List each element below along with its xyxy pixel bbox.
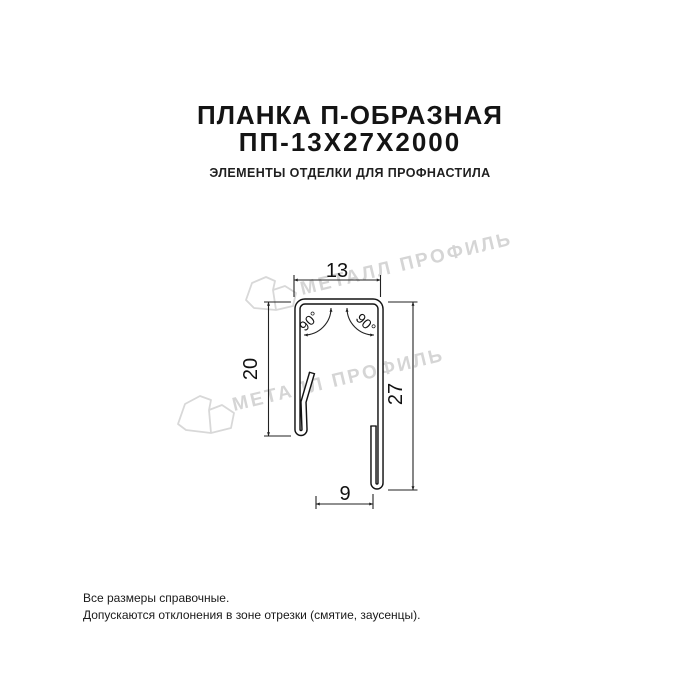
dimension-label-top: 13 [326,260,348,282]
dimension-left-height [264,302,291,436]
angle-label-right: 90° [353,310,379,336]
watermark-text-lower: МЕТАЛЛ ПРОФИЛЬ [230,345,446,416]
dimension-label-bottom: 9 [339,483,350,505]
dimension-label-left: 20 [240,358,262,380]
product-drawing-page: ПЛАНКА П-ОБРАЗНАЯ ПП-13Х27Х2000 ЭЛЕМЕНТЫ… [0,0,700,700]
metall-profil-logo-icon [178,396,234,433]
footer-notes: Все размеры справочные. Допускаются откл… [83,590,420,624]
footer-note-line2: Допускаются отклонения в зоне отрезки (с… [83,607,420,624]
dimension-label-right: 27 [385,383,407,405]
footer-note-line1: Все размеры справочные. [83,590,420,607]
watermark-upper: МЕТАЛЛ ПРОФИЛЬ [246,229,515,310]
metall-profil-logo-icon [246,277,296,310]
